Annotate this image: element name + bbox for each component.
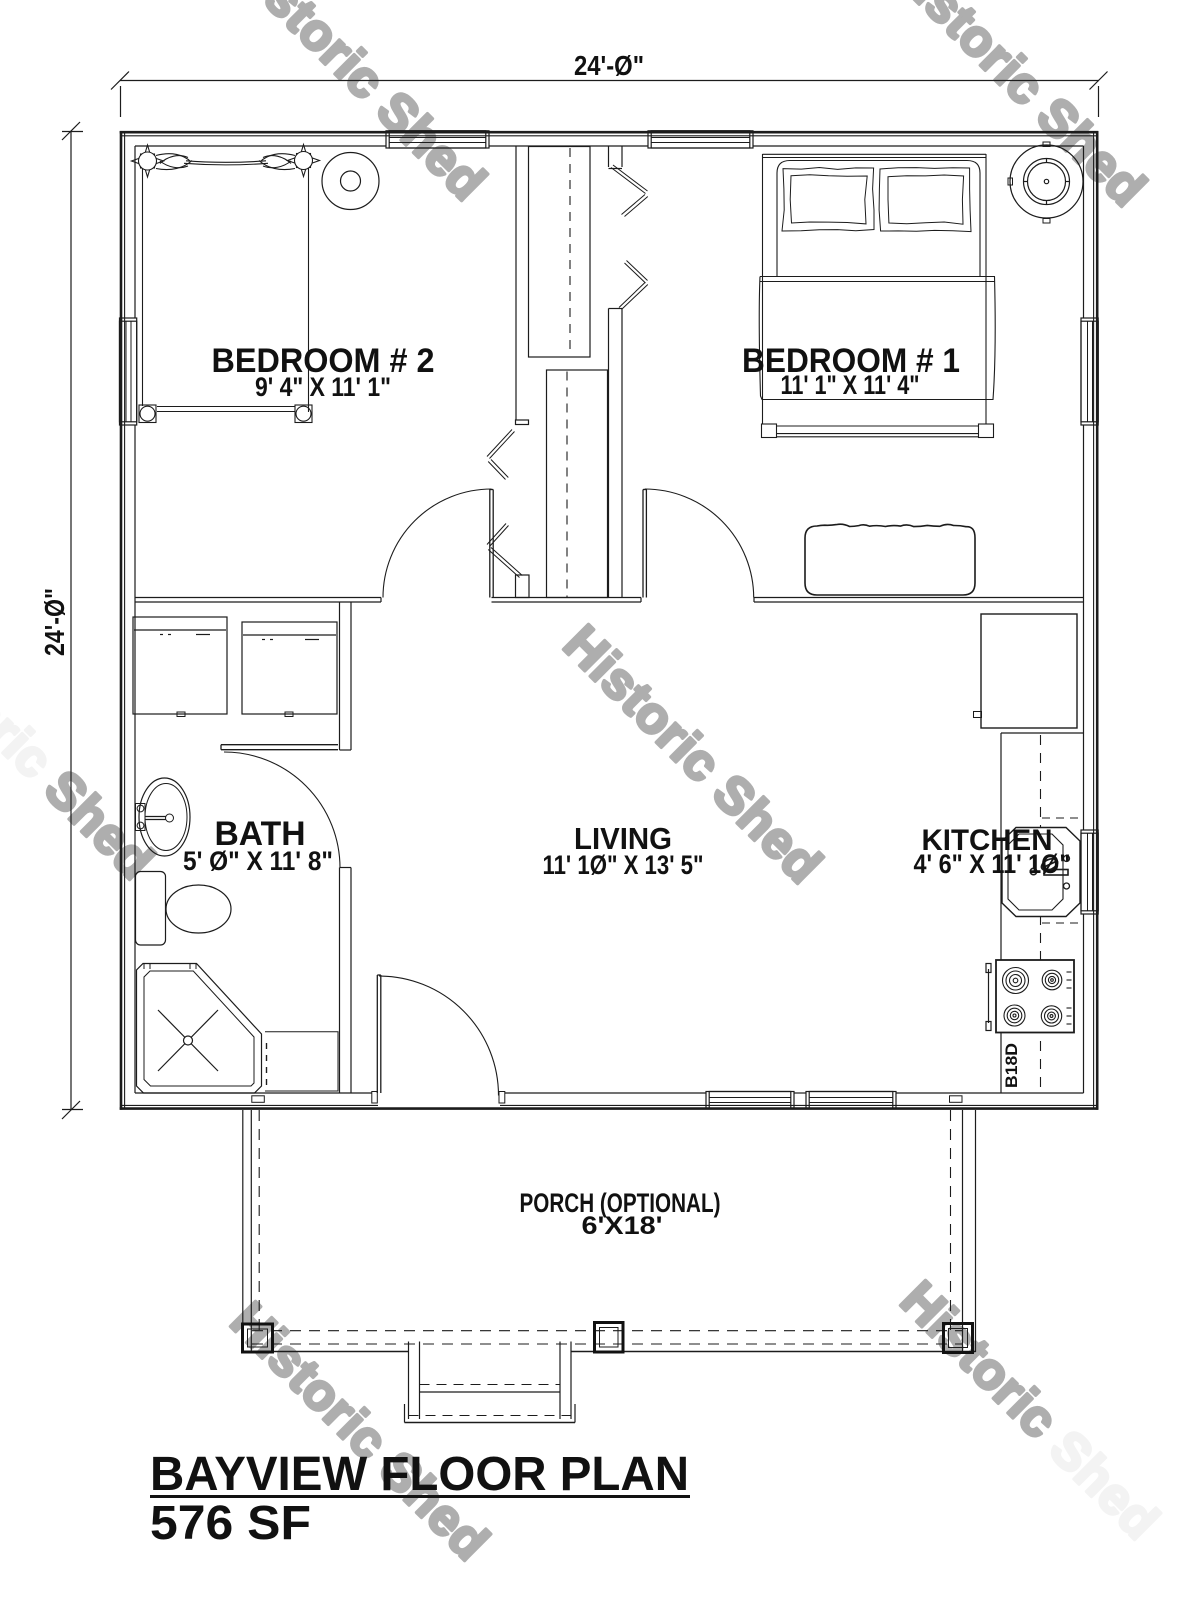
svg-text:4' 6" X 11' 1Ø": 4' 6" X 11' 1Ø" bbox=[914, 849, 1071, 879]
svg-text:24'-Ø": 24'-Ø" bbox=[39, 588, 70, 656]
svg-text:B18D: B18D bbox=[1002, 1043, 1021, 1088]
svg-text:24'-Ø": 24'-Ø" bbox=[574, 50, 644, 81]
svg-text:9' 4" X 11' 1": 9' 4" X 11' 1" bbox=[255, 372, 391, 402]
svg-text:5' Ø" X 11' 8": 5' Ø" X 11' 8" bbox=[183, 846, 333, 876]
svg-text:6'X18': 6'X18' bbox=[582, 1212, 663, 1240]
svg-text:11' 1Ø" X 13' 5": 11' 1Ø" X 13' 5" bbox=[543, 850, 704, 880]
svg-text:BAYVIEW FLOOR PLAN: BAYVIEW FLOOR PLAN bbox=[150, 1448, 689, 1501]
svg-text:576 SF: 576 SF bbox=[150, 1497, 311, 1550]
svg-text:11' 1" X 11' 4": 11' 1" X 11' 4" bbox=[781, 370, 920, 400]
